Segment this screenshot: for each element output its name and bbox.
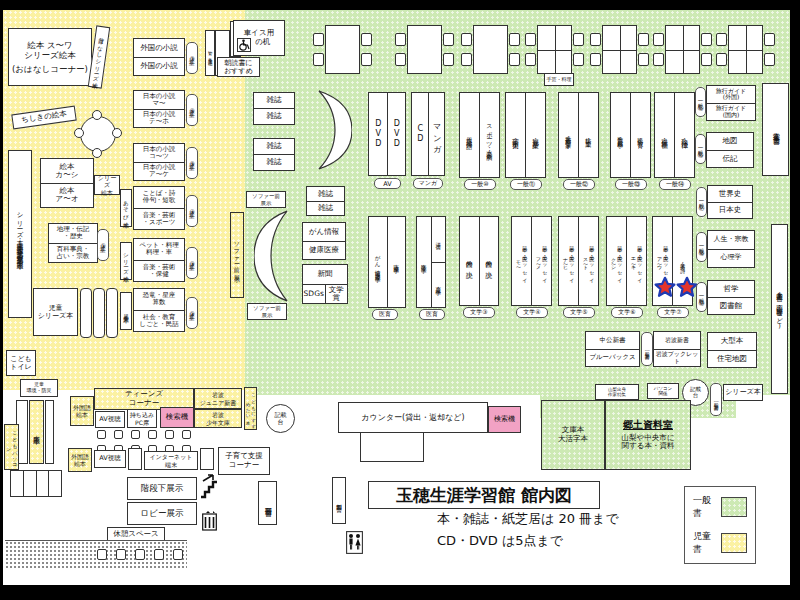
sofa-front-tenji-2: ソファー前展示 bbox=[247, 303, 287, 320]
shinbun-sdgs: 新聞SDGs文学賞 bbox=[302, 264, 348, 304]
kamishibai-long-strip: シリーズ本・点字絵本・布絵本・紙芝居・大型紙芝居・大型絵本 bbox=[8, 150, 32, 318]
badge-jido-3: 児童③ bbox=[186, 247, 198, 279]
wheelchair-icon bbox=[237, 37, 251, 51]
shelf-small-2 bbox=[200, 448, 214, 470]
jido-ogata-strip: 児童大型本 bbox=[120, 292, 132, 330]
bench-seats bbox=[10, 470, 62, 497]
lending-note-av: CD・DVD は5点まで bbox=[437, 532, 563, 550]
zasshi-rack-3: 雑誌雑誌 bbox=[306, 186, 345, 216]
pet-ryori-kuruma: ペット・料理料理・車音楽・芸術・保健 bbox=[133, 238, 185, 282]
tetsugaku-toshokan: 哲学図書館 bbox=[707, 280, 755, 315]
shelf-bungaku-5: 日本の小説・エッセイナ〜ヒ日本の小説・エッセイス〜ト bbox=[558, 216, 599, 306]
badge-ippan-shinsho-1: 一般新書 bbox=[641, 332, 653, 366]
badge-manga: マンガ bbox=[413, 178, 443, 189]
badge-bungaku-6: 文学⑥ bbox=[611, 307, 643, 318]
kodomo-susumetai-strip: こどもにすすめたい本 bbox=[244, 387, 257, 430]
badge-jido-5: 児童⑤ bbox=[186, 147, 198, 179]
badge-iiku-1: 医育 bbox=[372, 309, 398, 320]
internet-tanmatsu: インターネット端末 bbox=[144, 451, 198, 470]
counter-inner bbox=[360, 432, 424, 462]
shelf-ippan-10: 日本語・外国語スポーツ・音楽・演劇 bbox=[459, 92, 500, 178]
series-ehon-strip: シリーズ絵本 bbox=[120, 242, 132, 280]
ehon-ka-shi: 絵本カ〜シ絵本ア〜オ bbox=[40, 158, 94, 208]
reading-table-4 bbox=[525, 25, 582, 72]
library-floor-map: 絵本 ス〜ワシリーズ絵本(おはなしコーナー)昔ばなしシリーズ絵本ちしきの絵本外国… bbox=[0, 0, 800, 600]
aoitori-bunko-strip: 青い鳥文庫・他 bbox=[205, 30, 215, 76]
jinsei-shukyo: 人生・宗教心理学 bbox=[707, 230, 755, 268]
kaidan-shita-tenji: 階段下展示 bbox=[127, 477, 197, 500]
lending-note-books: 本・雑誌・紙芝居は 20 冊まで bbox=[437, 510, 619, 528]
shinkan-tosho-1: 新刊図書 bbox=[258, 481, 277, 525]
shelf-small-1 bbox=[128, 448, 142, 470]
badge-ippan-shinsho-2: 一般新書 bbox=[710, 383, 722, 416]
shelf-ippan-12: 手芸・料理・家事技術・工業 bbox=[558, 92, 599, 178]
kisaidai-1: 記載台 bbox=[266, 404, 295, 433]
av-shicho-1: AV視聴 bbox=[95, 411, 125, 428]
badge-ippan-19: 一般⑲ bbox=[696, 282, 707, 312]
badge-ippan-12: 一般⑫ bbox=[563, 179, 595, 190]
curved-shelf-lower bbox=[254, 210, 290, 302]
badge-ippan-14: 一般⑭ bbox=[659, 179, 691, 190]
ogata-jutaku: 大型本住宅地図 bbox=[707, 332, 757, 368]
stairs-icon bbox=[199, 473, 219, 499]
shelf-ippan-11: 芸術・美術観光・産業 bbox=[505, 92, 546, 178]
kensakuki-teens: 検索機 bbox=[160, 407, 194, 428]
chuko-shinsho: 中公新書ブルーバックス bbox=[585, 331, 640, 367]
curved-shelf-upper bbox=[316, 90, 352, 170]
sekaishi-nihonshi: 世界史日本史 bbox=[707, 185, 753, 219]
shelf-bungaku-4: 日本の小説・エッセイモ〜日本の小説・エッセイフ〜メ bbox=[511, 216, 552, 306]
zasshi-rack-1: 雑誌雑誌 bbox=[253, 92, 295, 125]
map-title: 玉穂生涯学習館 館内図 bbox=[368, 481, 600, 509]
sanko-tosho: 参考図書(図鑑・辞書など) bbox=[771, 224, 788, 394]
badge-ippan-15: 一般⑮ bbox=[695, 87, 706, 117]
picture-books-su-wa: 絵本 ス〜ワシリーズ絵本(おはなしコーナー) bbox=[8, 28, 92, 86]
badge-bungaku-4: 文学④ bbox=[516, 307, 548, 318]
reading-table-1 bbox=[313, 25, 370, 72]
foreign-novels-children: 外国の小説外国の小説 bbox=[133, 38, 185, 76]
shelf-ippan-14: 税金・福祉政治・法律 bbox=[654, 92, 695, 178]
shelf-medical-1: がん情報・医療・医学医療・医学 bbox=[368, 216, 406, 308]
legend-general-label: 一般書 bbox=[693, 494, 715, 520]
reading-table-2 bbox=[395, 25, 452, 72]
badge-av: AV bbox=[374, 178, 401, 189]
pasokon-kankei: パソコン関係 bbox=[647, 383, 679, 399]
badge-ippan-17: 一般⑰ bbox=[696, 187, 707, 217]
zasshi-rack-2: 雑誌雑誌 bbox=[253, 138, 295, 171]
japanese-novels-ma: 日本の小説マ〜日本の小説テ〜ホ bbox=[133, 90, 185, 128]
gaikokugo-ehon-2: 外国語絵本 bbox=[68, 448, 92, 472]
legend-general-swatch bbox=[721, 497, 747, 517]
reading-table-5 bbox=[590, 25, 647, 72]
kyukei-dot-area bbox=[5, 540, 187, 568]
stool-row-1 bbox=[97, 430, 192, 438]
asadoku-osusume: 朝読書におすすめ bbox=[217, 57, 260, 77]
chizu-denki: 地図伝記 bbox=[706, 132, 754, 168]
legend-children-label: 児童書 bbox=[693, 530, 715, 556]
kodomo-toilet: こどもトイレ bbox=[6, 350, 36, 376]
iwanami-shinsho: 岩波新書岩波ブックレット bbox=[653, 331, 701, 367]
badge-ippan-16: 一般⑯ bbox=[695, 134, 706, 164]
reading-table-6 bbox=[653, 25, 710, 72]
badge-ippan-13: 一般⑬ bbox=[615, 179, 647, 190]
shelf-ippan-13: 数学・自然科学民俗・教育 bbox=[610, 92, 651, 178]
badge-jido-1: 児童① bbox=[97, 229, 109, 261]
badge-ippan-10: 一般⑩ bbox=[464, 179, 496, 190]
gan-joho-kenko: がん情報健康医療 bbox=[302, 222, 346, 260]
badge-iiku-2: 医育 bbox=[419, 309, 445, 320]
dvd-shelf: DVDDVD bbox=[368, 92, 406, 176]
shelf-medical-2: 医学・医学洋書育児・医学 bbox=[416, 216, 446, 308]
japanese-novels-ko: 日本の小説コ〜ツ日本の小説ア〜ケ bbox=[133, 143, 185, 181]
legend-children-swatch bbox=[721, 533, 747, 553]
series-bon: シリーズ本 bbox=[723, 384, 763, 401]
shelf-bungaku-6: 日本の小説・エッセイク〜シ日本の小説・エッセイエ〜キ bbox=[606, 216, 647, 306]
kyoryu-seiza-sansu: 恐竜・星座算数社会・教育しごと・民話 bbox=[133, 288, 185, 332]
badge-bungaku-7: 文学⑦ bbox=[657, 307, 689, 318]
badge-ippan-11: 一般⑪ bbox=[510, 179, 542, 190]
elevator-icon bbox=[202, 511, 217, 531]
mochikomi-pc-seki: 持ち込みPC席 bbox=[127, 409, 157, 428]
chiri-denki-rekishi: 地理・伝記・歴史百科事典・占い・宗教 bbox=[48, 223, 98, 263]
badge-jido-6: 児童⑥ bbox=[186, 94, 198, 126]
series-ehon-box: シリーズ絵本 bbox=[94, 175, 120, 195]
badge-jido-4: 児童④ bbox=[186, 195, 198, 227]
iwanami-shonen-bunko: 岩波少年文庫 bbox=[194, 409, 242, 428]
bunkobon-daikatsuji: 文庫本大活字本 bbox=[541, 400, 605, 470]
badge-bungaku-3: 文学③ bbox=[463, 307, 495, 318]
gaikokugo-ehon-1: 外国語絵本 bbox=[70, 396, 94, 426]
kyodo-shiryoshitsu: 郷土資料室山梨や中央市に関する本・資料 bbox=[605, 400, 691, 470]
restroom-icon bbox=[346, 531, 363, 554]
bungaku-zenshu: 文学全集・叢書 bbox=[762, 83, 789, 176]
asobi-ehon-strip: あそび絵本 bbox=[120, 189, 132, 227]
star-markers bbox=[654, 274, 698, 300]
shelf-right-of-ogata bbox=[45, 400, 54, 464]
story-corner-round-table bbox=[74, 110, 120, 156]
shelf-bungaku-3: 外国の小説外国の小説 bbox=[459, 216, 499, 306]
lobby-tenji: ロビー展示 bbox=[127, 502, 197, 525]
frame-right bbox=[790, 0, 800, 600]
legend-row-general: 一般書 bbox=[693, 494, 747, 520]
reading-table-3 bbox=[461, 25, 518, 72]
ryoko-guide: 旅行ガイド(外国)旅行ガイド(国内) bbox=[706, 85, 756, 121]
shinkan-tosho-2: 新刊図書 bbox=[332, 477, 346, 524]
badge-jido-2: 児童② bbox=[186, 297, 198, 329]
yamanashi-sakka: 山梨出身作家特集 bbox=[595, 384, 639, 400]
iwanami-junior-shinsho: 岩波ジュニア新書 bbox=[194, 388, 242, 409]
badge-ippan-18: 一般⑱ bbox=[696, 232, 707, 262]
kosodate-shien-corner: 子育て支援コーナー bbox=[218, 447, 270, 475]
cd-manga-shelf: CDマンガ bbox=[411, 92, 445, 176]
shelf-strips bbox=[80, 288, 118, 336]
legend-row-children: 児童書 bbox=[693, 530, 747, 556]
frame-top bbox=[0, 0, 800, 10]
shugei-ryori-label: 手芸・料理 bbox=[544, 73, 574, 86]
badge-jido-7: 児童⑦ bbox=[186, 42, 198, 74]
legend: 一般書 児童書 bbox=[684, 486, 756, 564]
av-shicho-2: AV視聴 bbox=[94, 450, 126, 468]
frame-bottom bbox=[0, 585, 800, 600]
ogata-ehon-strip: 大型絵本 bbox=[29, 400, 44, 464]
badge-bungaku-5: 文学⑤ bbox=[563, 307, 595, 318]
counter: カウンター(貸出・返却など) bbox=[338, 402, 488, 433]
reading-table-7 bbox=[716, 25, 773, 72]
jido-kankyo-bosai: 児童環境・防災 bbox=[20, 379, 58, 397]
kensakuki-counter: 検索機 bbox=[488, 406, 521, 433]
kodomo-pasokon-strip: こどもパソコン bbox=[4, 424, 19, 470]
jido-series-bon: 児童シリーズ本 bbox=[33, 288, 78, 336]
sofa-front-strip: ソファー前 展示 bbox=[230, 212, 244, 298]
kyodo-shiryoshitsu-title: 郷土資料室 bbox=[623, 419, 673, 431]
sofa-front-tenji-1: ソファー前展示 bbox=[246, 191, 286, 208]
kotoba-shi-haiku: ことば・詩俳句・短歌音楽・芸術・スポーツ bbox=[133, 186, 185, 230]
